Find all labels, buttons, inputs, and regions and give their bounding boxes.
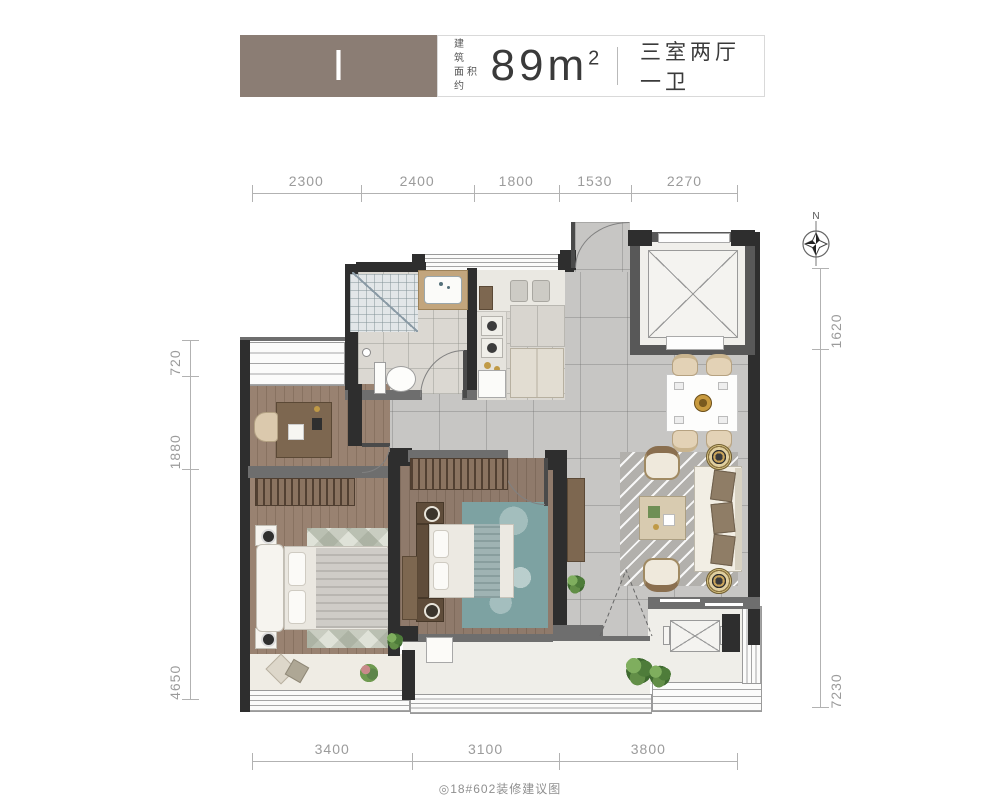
dim-segment: 1620 (820, 268, 846, 349)
pillow (288, 552, 306, 586)
spec-block: 建 筑 面积约 89m2 三室两厅一卫 (437, 35, 765, 97)
ac-flap (663, 626, 670, 645)
dim-label: 2300 (252, 173, 361, 189)
place-setting (718, 416, 728, 424)
dim-label: 7230 (828, 349, 844, 708)
table-lamp (261, 529, 276, 544)
kitchen-counter-right (510, 305, 565, 347)
dining-chair (672, 430, 698, 452)
dim-segment: 2270 (631, 168, 738, 194)
unit-label-block: I (240, 35, 437, 97)
desk-lamp (314, 406, 320, 412)
shower-glass (352, 272, 418, 332)
plant (386, 632, 404, 650)
elevator-door-sill (666, 336, 724, 350)
wall-bedroom2-right (553, 468, 567, 640)
wall (731, 230, 755, 246)
layout-type: 三室两厅一卫 (618, 36, 764, 96)
dim-label: 3800 (559, 741, 738, 757)
dim-segment: 1880 (165, 376, 191, 469)
area-value: 89m2 (491, 41, 604, 91)
dims-left: 72018804650 (165, 340, 191, 700)
study-bay-window (240, 342, 345, 386)
dim-label: 4650 (167, 469, 183, 700)
burner-icon (487, 321, 497, 331)
dim-label: 1800 (474, 173, 559, 189)
master-bed-headboard (256, 544, 284, 632)
side-table (706, 444, 732, 470)
dims-top: 23002400180015302270 (252, 168, 738, 194)
dim-segment: 3100 (412, 736, 558, 762)
dim-label: 2400 (361, 173, 474, 189)
dim-label: 3400 (252, 741, 412, 757)
side-table (706, 568, 732, 594)
bedroom2-wardrobe (410, 458, 508, 490)
dim-segment: 4650 (165, 469, 191, 700)
compass-north-label: N (812, 211, 819, 222)
plant (566, 574, 586, 594)
coffee-table-item (653, 524, 659, 530)
dim-segment: 3800 (559, 736, 738, 762)
kitchen-prep-sink (478, 370, 506, 398)
wall-study-right (348, 384, 362, 446)
se-balcony-bottom-window (652, 682, 762, 712)
mid-balcony-window (410, 694, 652, 714)
entry-door-leaf (571, 222, 575, 268)
elevator-x-icon (648, 250, 738, 338)
pillow (433, 562, 449, 590)
dim-label: 3100 (412, 741, 558, 757)
dim-segment: 7230 (820, 349, 846, 708)
coffee-table-plant (648, 506, 660, 518)
dim-segment: 2300 (252, 168, 361, 194)
table-lamp (424, 506, 440, 522)
kitchen-sink (510, 280, 528, 302)
toilet-tank (374, 362, 386, 394)
unit-label: I (332, 41, 344, 91)
wall (545, 450, 567, 470)
wall (240, 337, 345, 341)
dim-label: 1530 (559, 173, 631, 189)
table-lamp (424, 603, 440, 619)
coffee-table-tray (663, 514, 675, 526)
dim-label: 2270 (631, 173, 738, 189)
dim-segment: 720 (165, 340, 191, 376)
desk-paper (288, 424, 304, 440)
table-centerpiece (694, 394, 712, 412)
dim-label: 1880 (167, 376, 183, 469)
wall-left-outer (240, 340, 250, 712)
kitchen-sink (532, 280, 550, 302)
plant (358, 662, 380, 684)
sofa-cushion (710, 534, 735, 566)
toilet-paper-holder (362, 348, 371, 357)
dim-label: 720 (167, 340, 183, 376)
dining-chair (672, 354, 698, 376)
master-bed-blanket (316, 548, 388, 628)
dim-segment: 2400 (361, 168, 474, 194)
sink-basin (424, 276, 462, 304)
slider-door (660, 599, 700, 602)
caption: ◎18#602装修建议图 (0, 780, 1000, 797)
wall-bath-kitchen-divider (467, 268, 477, 398)
burner-icon (487, 343, 497, 353)
dim-segment: 1530 (559, 168, 631, 194)
tv-console (567, 478, 585, 562)
sofa-cushion (710, 470, 736, 503)
dining-chair (706, 354, 732, 376)
table-lamp (261, 632, 276, 647)
sofa-back (735, 468, 742, 570)
wall-master-bedroom2-divider (388, 452, 400, 656)
balcony-cabinet (426, 637, 453, 663)
spice-rack (479, 286, 493, 310)
pillow (288, 590, 306, 624)
master-bay-window (240, 690, 410, 712)
dims-right: 16207230 (820, 268, 846, 708)
compass: N (794, 208, 838, 268)
wall (722, 614, 740, 652)
toilet-bowl (386, 366, 416, 392)
place-setting (674, 382, 684, 390)
fridge (510, 348, 564, 398)
armchair (643, 558, 680, 592)
wall (628, 230, 652, 246)
master-wardrobe (255, 478, 355, 506)
desk (276, 402, 332, 458)
desk-monitor (312, 418, 322, 430)
desk-chair (254, 412, 278, 442)
dim-segment: 3400 (252, 736, 412, 762)
pillow (433, 530, 449, 558)
area-prefix: 建 筑 面积约 (454, 38, 481, 94)
sofa-cushion (710, 502, 735, 534)
floor-plan-page: I 建 筑 面积约 89m2 三室两厅一卫 230024001800153022… (0, 0, 1000, 811)
wall-bay-right (402, 650, 415, 700)
place-setting (674, 416, 684, 424)
slider-door (705, 603, 743, 606)
faucet (447, 286, 450, 289)
plant (648, 664, 672, 688)
dims-bottom: 340031003800 (252, 736, 738, 762)
place-setting (718, 382, 728, 390)
ac-unit (670, 620, 720, 652)
compass-icon: N (794, 208, 838, 268)
elevator-door-sill (658, 233, 730, 243)
armchair (644, 446, 680, 480)
dim-label: 1620 (828, 268, 844, 349)
bed-runner (474, 524, 500, 598)
bedroom2-dresser (402, 556, 418, 620)
faucet (439, 282, 443, 286)
dim-segment: 1800 (474, 168, 559, 194)
kitchen-accessory (484, 362, 491, 369)
